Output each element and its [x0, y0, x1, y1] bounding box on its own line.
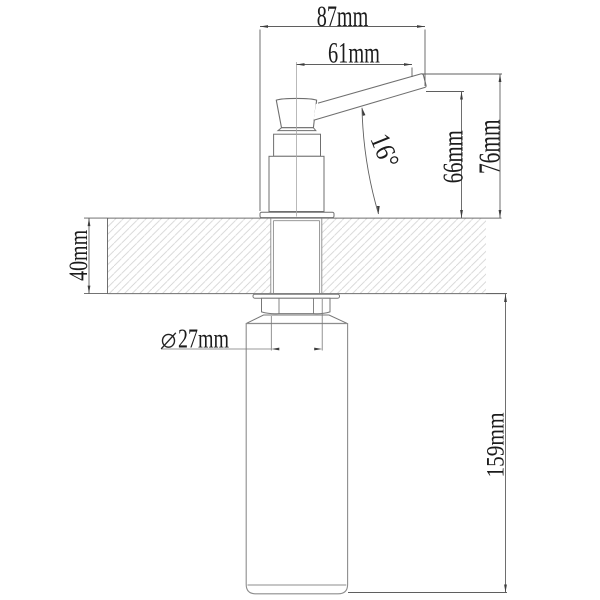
svg-text:66mm: 66mm [439, 130, 470, 183]
svg-text:61mm: 61mm [328, 36, 380, 69]
svg-text:159mm: 159mm [483, 412, 510, 477]
svg-text:87mm: 87mm [317, 0, 369, 33]
svg-text:76mm: 76mm [472, 119, 507, 174]
svg-text:27mm: 27mm [178, 324, 229, 354]
svg-text:40mm: 40mm [64, 230, 93, 281]
